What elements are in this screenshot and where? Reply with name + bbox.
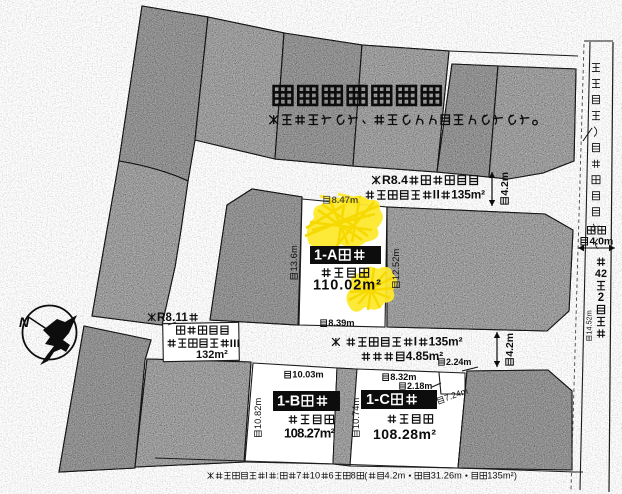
- svg-text::: :: [277, 471, 280, 481]
- svg-text:14.52m: 14.52m: [584, 310, 593, 334]
- svg-text:108.28m²: 108.28m²: [373, 426, 436, 442]
- svg-text:R8.4: R8.4: [382, 173, 408, 187]
- svg-text:4.2m: 4.2m: [504, 333, 516, 357]
- svg-text:10.03m: 10.03m: [292, 370, 323, 380]
- svg-text:108.27m²: 108.27m²: [284, 426, 336, 441]
- svg-text:7: 7: [296, 471, 301, 481]
- svg-text:2.24m: 2.24m: [446, 357, 471, 367]
- svg-text:8.39m: 8.39m: [328, 318, 354, 328]
- svg-text:10.82m: 10.82m: [253, 397, 263, 429]
- svg-text:4.2m: 4.2m: [385, 471, 406, 481]
- svg-text:135m²: 135m²: [429, 335, 463, 349]
- svg-text:135m²): 135m²): [487, 471, 517, 481]
- svg-text:II: II: [433, 188, 440, 202]
- svg-text:2: 2: [598, 292, 604, 304]
- svg-text:1-A: 1-A: [314, 247, 338, 263]
- svg-text:31.26m: 31.26m: [431, 471, 462, 481]
- svg-text:I: I: [414, 335, 417, 349]
- svg-text:42: 42: [595, 268, 607, 280]
- svg-text:110.02m²: 110.02m²: [313, 278, 381, 294]
- svg-text:8.47m: 8.47m: [332, 195, 359, 206]
- svg-text:4.85m²: 4.85m²: [406, 349, 443, 363]
- svg-text:8: 8: [351, 471, 356, 481]
- svg-text:135m²: 135m²: [451, 188, 485, 202]
- svg-text:6: 6: [329, 471, 334, 481]
- svg-text:13.6m: 13.6m: [289, 245, 299, 271]
- svg-text:(: (: [364, 471, 367, 481]
- svg-text:10.74m: 10.74m: [351, 397, 361, 429]
- svg-text:I: I: [265, 471, 268, 481]
- svg-text:12.52m: 12.52m: [391, 248, 401, 280]
- svg-text:2.18m: 2.18m: [407, 381, 432, 391]
- svg-text:R8.11: R8.11: [157, 312, 188, 324]
- svg-text:132m²: 132m²: [196, 349, 228, 361]
- svg-text:1-C: 1-C: [366, 392, 390, 408]
- svg-text:10: 10: [310, 471, 320, 481]
- svg-text:1-B: 1-B: [277, 393, 300, 409]
- svg-text:4.2m: 4.2m: [499, 172, 511, 196]
- svg-text:III: III: [230, 338, 240, 350]
